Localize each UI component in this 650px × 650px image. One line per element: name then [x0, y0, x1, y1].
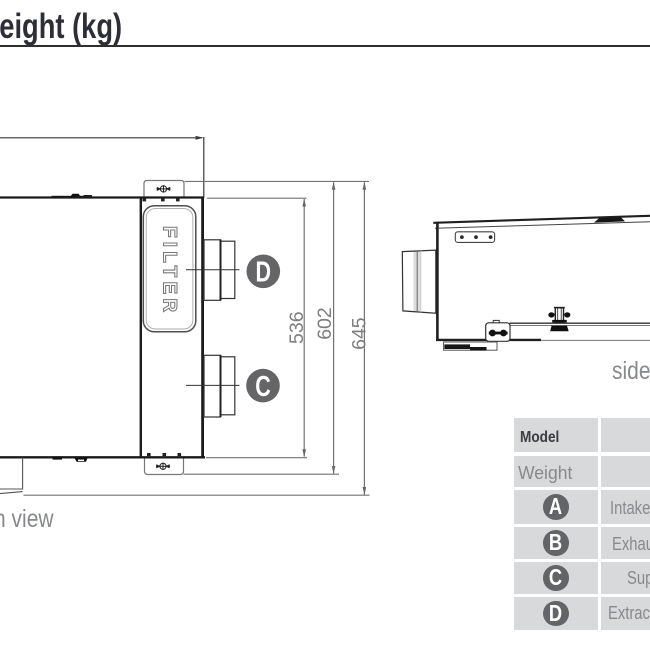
svg-text:645: 645	[348, 317, 370, 350]
svg-text:536: 536	[286, 311, 308, 344]
svg-text:D: D	[256, 256, 271, 288]
svg-text:C: C	[255, 371, 270, 403]
svg-text:FILTER: FILTER	[159, 226, 180, 316]
svg-text:602: 602	[314, 307, 336, 340]
